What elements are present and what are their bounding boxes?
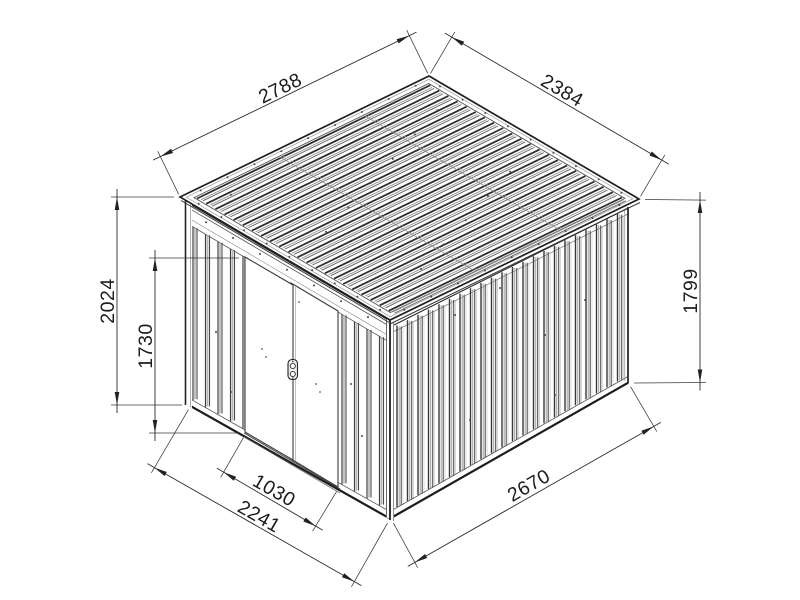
shed-drawing-art: [111, 30, 706, 587]
dim-label-roof-depth: 2788: [255, 69, 305, 109]
shed-isometric-drawing: 2788 2384 2024 1730 1799 1030 2241 2670: [0, 0, 800, 600]
dim-label-front-height: 2024: [97, 278, 119, 323]
corner-post: [386, 317, 394, 522]
drawing-canvas: 2788 2384 2024 1730 1799 1030 2241 2670: [0, 0, 800, 600]
dim-label-roof-width: 2384: [537, 70, 587, 112]
dim-label-side-depth: 2670: [504, 465, 554, 507]
dim-label-door-height: 1730: [135, 323, 157, 368]
dim-label-rear-height: 1799: [680, 268, 702, 313]
dim-front-height: [111, 189, 182, 413]
